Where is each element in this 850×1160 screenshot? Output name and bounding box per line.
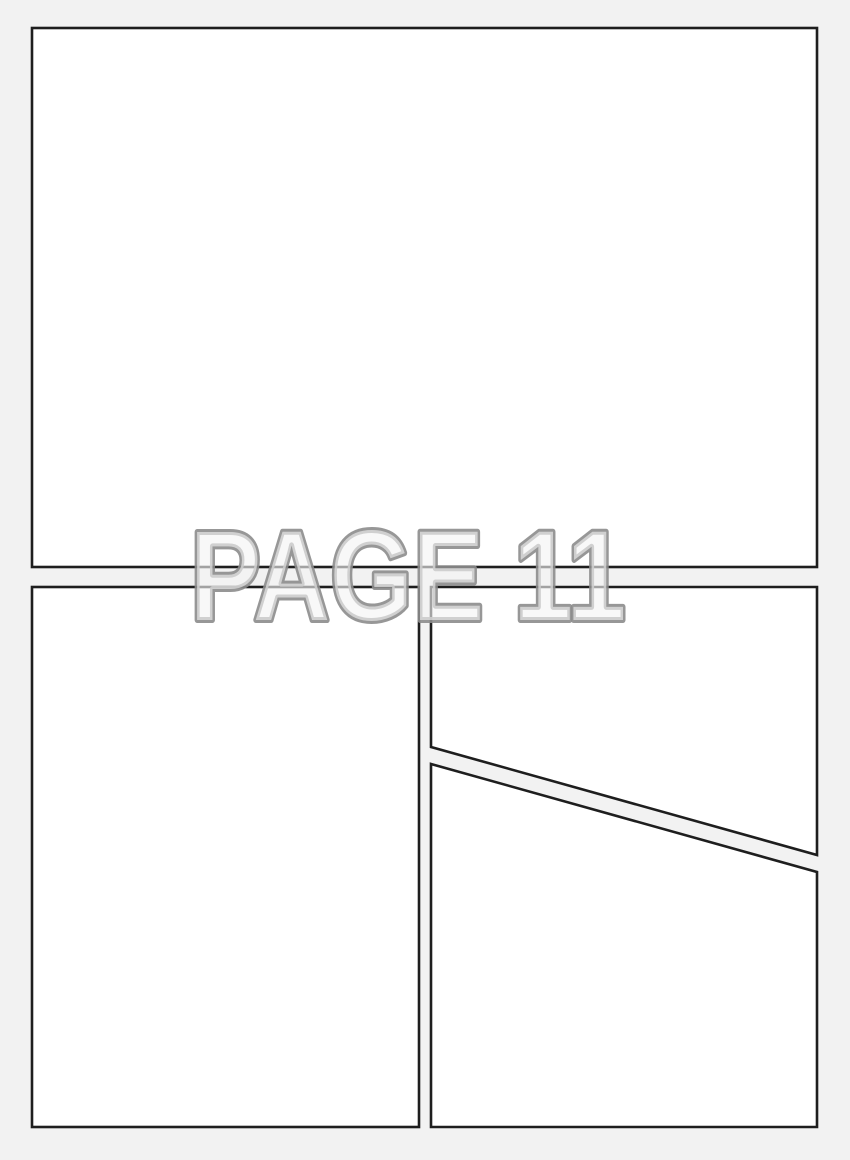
- panel-1-top: [32, 28, 817, 567]
- page-number-label: PAGE 11: [190, 505, 626, 648]
- panel-2-bottom-left: [32, 587, 419, 1127]
- comic-page-template: PAGE 11: [0, 0, 850, 1160]
- page-canvas: PAGE 11: [0, 0, 850, 1160]
